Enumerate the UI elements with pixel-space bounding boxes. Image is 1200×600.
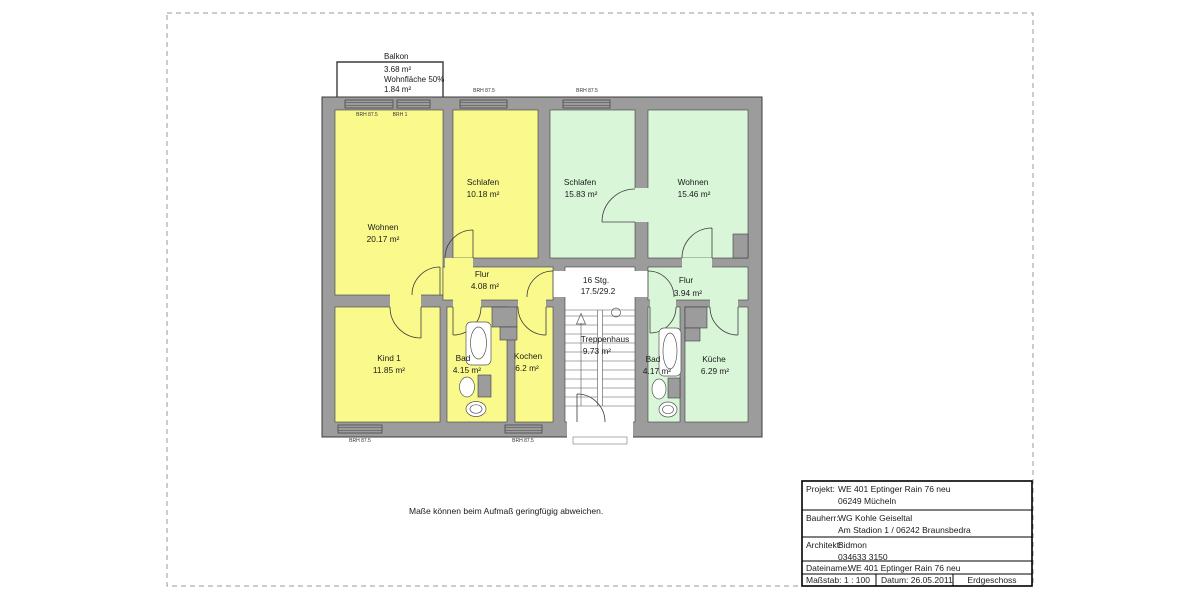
bathtub-right-basin <box>663 333 677 369</box>
title-block: Projekt: WE 401 Eptinger Rain 76 neu 062… <box>802 481 1032 586</box>
projekt-label: Projekt: <box>806 484 835 494</box>
balcony-area: 3.68 m² <box>384 65 411 74</box>
room-wohnen-left <box>335 110 443 295</box>
floor-plan-canvas: Balkon 3.68 m² Wohnfläche 50% 1.84 m² BR… <box>0 0 1200 600</box>
room-area: 3.94 m² <box>674 288 702 298</box>
room-label: Schlafen <box>564 177 597 187</box>
opening-kind-1 <box>390 295 421 308</box>
opening-kochen <box>518 300 546 308</box>
room-label: Wohnen <box>368 222 399 232</box>
room-area: 6.29 m² <box>701 366 729 376</box>
opening-schlafen-left <box>445 258 473 268</box>
room-label: Kochen <box>514 351 543 361</box>
architekt-line1: Bidmon <box>838 540 867 550</box>
opening-wohnen-right <box>682 258 712 268</box>
room-label: Küche <box>702 354 726 364</box>
chimney-kueche-b <box>685 328 700 341</box>
room-label: Treppenhaus <box>581 334 630 344</box>
room-area: 15.83 m² <box>565 189 598 199</box>
sink-right <box>652 379 666 399</box>
brh-label: BRH 87.5 <box>349 438 371 444</box>
room-label: Flur <box>679 275 694 285</box>
chimney-kochen-b <box>500 327 517 340</box>
room-area: 15.46 m² <box>678 189 711 199</box>
geschoss-label: Erdgeschoss <box>967 575 1016 585</box>
balcony-title: Balkon <box>384 52 408 61</box>
toilet-left-bowl <box>470 405 482 414</box>
massstab-value: 1 : 100 <box>844 575 870 585</box>
stairs-rise-run-label: 17.5/29.2 <box>581 286 616 296</box>
brh-label: BRH 87.5 <box>512 438 534 444</box>
room-area: 20.17 m² <box>367 234 400 244</box>
opening-kueche <box>710 300 738 308</box>
projekt-line2: 06249 Mücheln <box>838 496 896 506</box>
brh-label: BRH 87.5 <box>473 88 495 94</box>
stairs-steps-label: 16 Stg. <box>583 275 609 285</box>
room-area: 10.18 m² <box>467 189 500 199</box>
room-area: 11.85 m² <box>373 365 405 375</box>
room-label: Wohnen <box>678 177 709 187</box>
duct-bad-right <box>668 378 680 398</box>
balcony-labels: Balkon 3.68 m² Wohnfläche 50% 1.84 m² <box>384 52 444 94</box>
room-label: Bad <box>646 354 661 364</box>
massstab-label: Maßstab: <box>806 575 841 585</box>
opening-building-entrance <box>567 422 633 438</box>
dateiname-value: WE 401 Eptinger Rain 76 neu <box>848 563 961 573</box>
opening-bad-left <box>453 300 481 308</box>
toilet-right-bowl <box>663 405 674 413</box>
bathtub-left-basin <box>471 327 487 359</box>
bauherr-label: Bauherr: <box>806 513 839 523</box>
room-area: 6.2 m² <box>515 363 539 373</box>
duct-bad-left <box>478 375 491 397</box>
datum-value: Datum: 26.05.2011 <box>881 575 953 585</box>
chimney-kochen-a <box>492 307 517 327</box>
opening-entrance-left <box>553 271 566 297</box>
dateiname-label: Dateiname: <box>806 563 849 573</box>
room-label: Kind 1 <box>377 353 401 363</box>
opening-schlafen-wohnen-right <box>635 188 649 222</box>
brh-label: BRH 87.5 <box>576 88 598 94</box>
sink-left <box>460 377 475 397</box>
balcony-effective-area: 1.84 m² <box>384 85 411 94</box>
opening-entrance-right <box>635 271 649 297</box>
brh-label: BRH 87.5 <box>356 112 378 118</box>
room-area: 4.17 m² <box>643 366 671 376</box>
room-area: 4.08 m² <box>471 281 499 291</box>
room-label: Flur <box>475 269 490 279</box>
room-area: 9.73 m² <box>583 346 611 356</box>
disclaimer-note: Maße können beim Aufmaß geringfügig abwe… <box>409 506 603 516</box>
drawing-sheet: Balkon 3.68 m² Wohnfläche 50% 1.84 m² BR… <box>0 0 1200 600</box>
brh-label: BRH 1 <box>393 112 408 118</box>
architekt-label: Architekt: <box>806 540 841 550</box>
projekt-line1: WE 401 Eptinger Rain 76 neu <box>838 484 951 494</box>
chimney-wohnen-right <box>733 234 748 258</box>
bauherr-line2: Am Stadion 1 / 06242 Braunsbedra <box>838 525 971 535</box>
room-area: 4.15 m² <box>453 365 481 375</box>
entrance-step <box>573 437 627 444</box>
bauherr-line1: WG Kohle Geiseltal <box>838 513 912 523</box>
balcony-note: Wohnfläche 50% <box>384 75 444 84</box>
room-label: Schlafen <box>467 177 500 187</box>
architekt-line2: 034633 3150 <box>838 552 888 562</box>
room-label: Bad <box>456 353 471 363</box>
opening-bad-right <box>650 300 676 308</box>
chimney-kueche-a <box>685 307 707 328</box>
